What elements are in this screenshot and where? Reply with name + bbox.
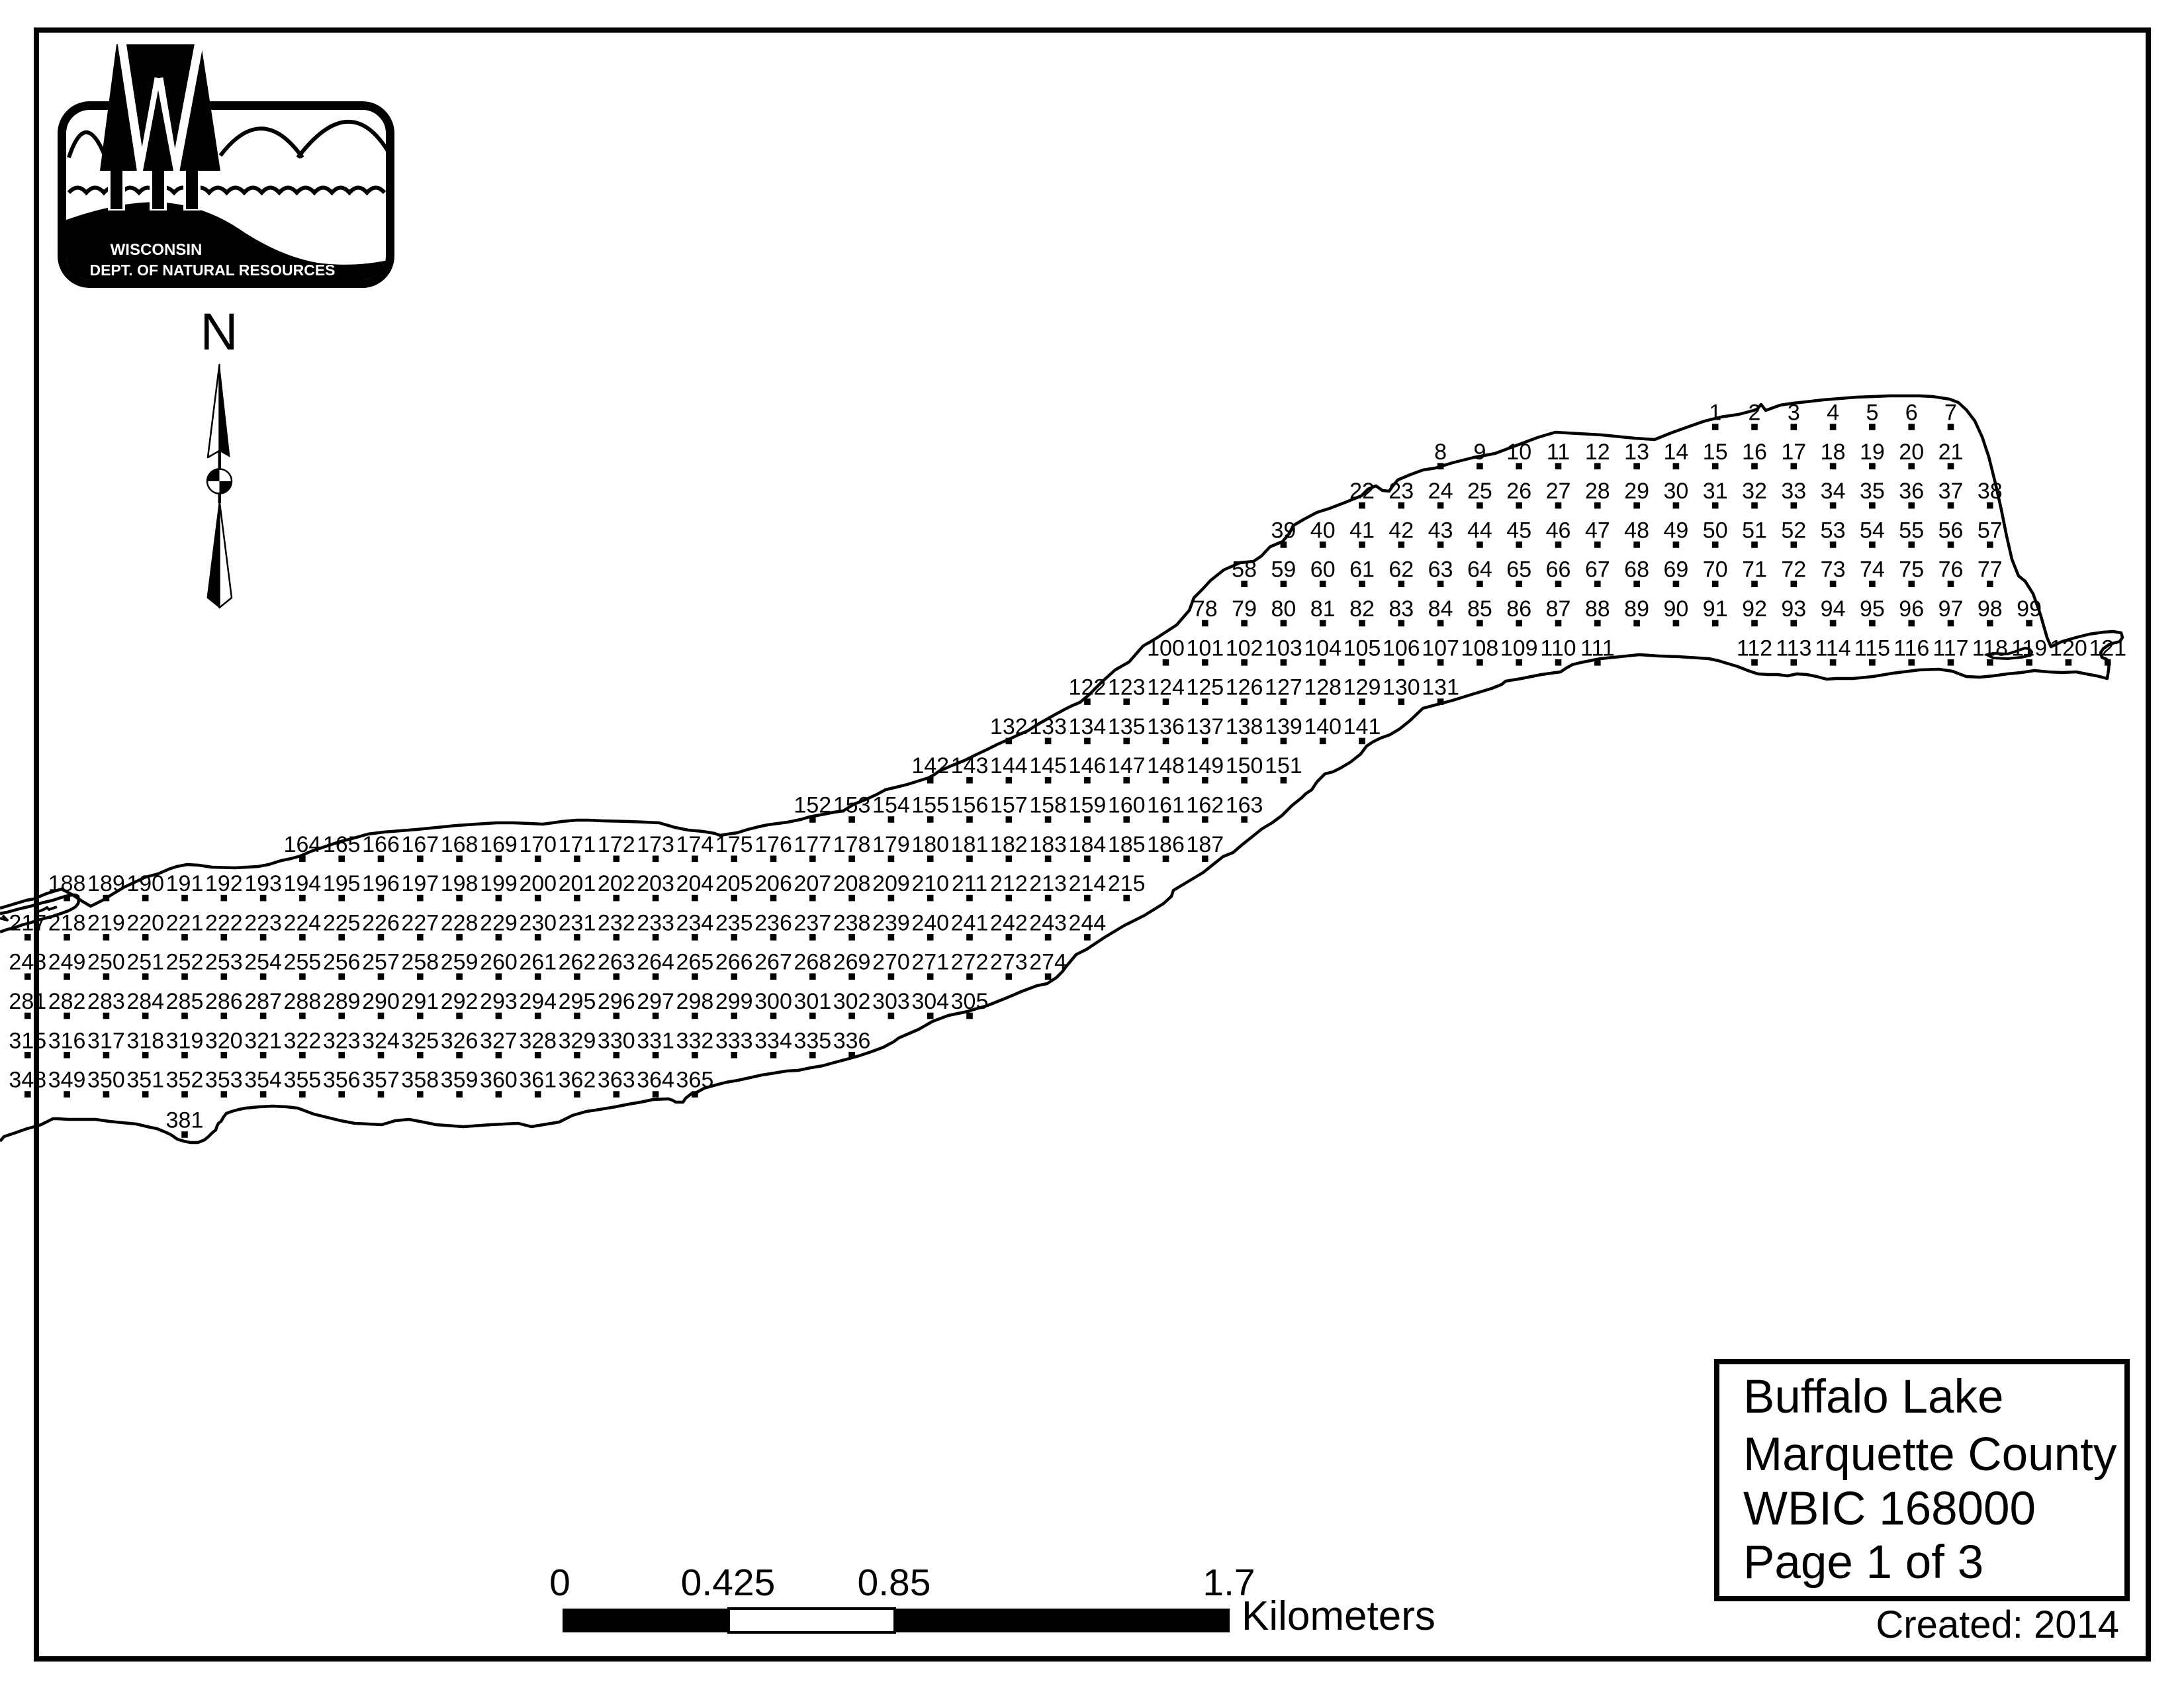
- svg-text:76: 76: [1938, 557, 1964, 583]
- svg-text:93: 93: [1781, 596, 1806, 622]
- svg-text:19: 19: [1860, 440, 1885, 465]
- svg-text:17: 17: [1781, 440, 1806, 465]
- svg-text:64: 64: [1467, 557, 1492, 583]
- svg-text:381: 381: [166, 1108, 204, 1133]
- svg-text:12: 12: [1585, 440, 1610, 465]
- svg-text:156: 156: [951, 793, 989, 818]
- svg-text:22: 22: [1349, 479, 1375, 504]
- svg-text:85: 85: [1467, 596, 1492, 622]
- svg-text:194: 194: [284, 871, 322, 896]
- svg-text:184: 184: [1069, 832, 1107, 857]
- svg-text:117: 117: [1933, 635, 1968, 661]
- svg-text:248: 248: [9, 950, 46, 975]
- svg-text:353: 353: [205, 1068, 243, 1093]
- svg-text:185: 185: [1108, 832, 1146, 857]
- svg-text:145: 145: [1029, 753, 1067, 778]
- svg-text:174: 174: [676, 832, 714, 857]
- svg-text:252: 252: [166, 950, 204, 975]
- svg-text:256: 256: [323, 950, 361, 975]
- svg-text:34: 34: [1821, 479, 1846, 504]
- svg-text:326: 326: [441, 1028, 478, 1053]
- svg-text:31: 31: [1703, 479, 1728, 504]
- svg-text:105: 105: [1343, 635, 1381, 661]
- svg-text:221: 221: [166, 910, 204, 935]
- svg-text:241: 241: [951, 910, 989, 935]
- svg-text:255: 255: [284, 950, 322, 975]
- svg-text:127: 127: [1265, 675, 1302, 700]
- svg-text:294: 294: [519, 989, 557, 1014]
- svg-text:262: 262: [559, 950, 596, 975]
- svg-text:208: 208: [833, 871, 871, 896]
- svg-text:253: 253: [205, 950, 243, 975]
- svg-text:188: 188: [48, 871, 86, 896]
- svg-text:350: 350: [87, 1068, 125, 1093]
- svg-text:295: 295: [559, 989, 596, 1014]
- svg-text:126: 126: [1226, 675, 1263, 700]
- svg-text:361: 361: [519, 1068, 557, 1093]
- svg-text:218: 218: [48, 910, 86, 935]
- svg-text:8: 8: [1434, 440, 1447, 465]
- svg-text:0.425: 0.425: [681, 1562, 776, 1604]
- svg-text:207: 207: [794, 871, 831, 896]
- svg-text:354: 354: [244, 1068, 282, 1093]
- svg-text:45: 45: [1506, 518, 1531, 543]
- svg-text:239: 239: [872, 910, 910, 935]
- svg-text:84: 84: [1428, 596, 1453, 622]
- svg-text:304: 304: [911, 989, 949, 1014]
- svg-text:187: 187: [1186, 832, 1224, 857]
- svg-text:27: 27: [1546, 479, 1571, 504]
- svg-text:143: 143: [951, 753, 989, 778]
- svg-text:250: 250: [87, 950, 125, 975]
- svg-text:363: 363: [598, 1068, 635, 1093]
- svg-text:333: 333: [715, 1028, 753, 1053]
- svg-text:26: 26: [1506, 479, 1531, 504]
- svg-text:129: 129: [1343, 675, 1381, 700]
- svg-text:324: 324: [362, 1028, 400, 1053]
- svg-text:78: 78: [1193, 596, 1218, 622]
- svg-text:32: 32: [1742, 479, 1767, 504]
- svg-text:14: 14: [1663, 440, 1688, 465]
- svg-text:237: 237: [794, 910, 831, 935]
- svg-text:282: 282: [48, 989, 86, 1014]
- svg-text:249: 249: [48, 950, 86, 975]
- svg-text:214: 214: [1069, 871, 1107, 896]
- svg-text:299: 299: [715, 989, 753, 1014]
- svg-text:147: 147: [1108, 753, 1146, 778]
- svg-text:293: 293: [480, 989, 518, 1014]
- svg-text:81: 81: [1310, 596, 1336, 622]
- svg-text:172: 172: [598, 832, 635, 857]
- svg-text:201: 201: [559, 871, 596, 896]
- svg-text:114: 114: [1815, 635, 1850, 661]
- svg-text:150: 150: [1226, 753, 1263, 778]
- svg-text:18: 18: [1821, 440, 1846, 465]
- svg-text:296: 296: [598, 989, 635, 1014]
- svg-text:66: 66: [1546, 557, 1571, 583]
- svg-text:60: 60: [1310, 557, 1336, 583]
- svg-text:232: 232: [598, 910, 635, 935]
- svg-text:148: 148: [1147, 753, 1185, 778]
- svg-text:133: 133: [1029, 714, 1067, 739]
- svg-text:Buffalo Lake: Buffalo Lake: [1743, 1371, 2003, 1423]
- svg-text:103: 103: [1265, 635, 1302, 661]
- svg-text:163: 163: [1226, 793, 1263, 818]
- svg-text:99: 99: [2017, 596, 2042, 622]
- svg-text:135: 135: [1108, 714, 1146, 739]
- svg-text:317: 317: [87, 1028, 125, 1053]
- svg-text:73: 73: [1821, 557, 1846, 583]
- svg-text:257: 257: [362, 950, 400, 975]
- svg-text:67: 67: [1585, 557, 1610, 583]
- svg-text:267: 267: [754, 950, 792, 975]
- svg-text:35: 35: [1860, 479, 1885, 504]
- svg-text:240: 240: [911, 910, 949, 935]
- svg-text:65: 65: [1506, 557, 1531, 583]
- svg-text:25: 25: [1467, 479, 1492, 504]
- svg-text:322: 322: [284, 1028, 322, 1053]
- svg-text:305: 305: [951, 989, 989, 1014]
- svg-text:43: 43: [1428, 518, 1453, 543]
- svg-text:193: 193: [244, 871, 282, 896]
- svg-text:348: 348: [9, 1068, 46, 1093]
- svg-text:178: 178: [833, 832, 871, 857]
- svg-text:301: 301: [794, 989, 831, 1014]
- svg-text:303: 303: [872, 989, 910, 1014]
- svg-text:274: 274: [1029, 950, 1067, 975]
- svg-text:226: 226: [362, 910, 400, 935]
- svg-text:112: 112: [1737, 635, 1772, 661]
- svg-text:91: 91: [1703, 596, 1728, 622]
- svg-text:98: 98: [1978, 596, 2003, 622]
- svg-text:302: 302: [833, 989, 871, 1014]
- svg-text:77: 77: [1978, 557, 2003, 583]
- svg-text:175: 175: [715, 832, 753, 857]
- svg-text:101: 101: [1186, 635, 1224, 661]
- svg-text:125: 125: [1186, 675, 1224, 700]
- svg-text:57: 57: [1978, 518, 2003, 543]
- svg-text:210: 210: [911, 871, 949, 896]
- svg-text:264: 264: [637, 950, 674, 975]
- svg-text:56: 56: [1938, 518, 1964, 543]
- svg-text:292: 292: [441, 989, 478, 1014]
- svg-text:291: 291: [401, 989, 439, 1014]
- svg-text:Kilometers: Kilometers: [1242, 1593, 1435, 1639]
- svg-text:243: 243: [1029, 910, 1067, 935]
- svg-text:165: 165: [323, 832, 361, 857]
- svg-text:272: 272: [951, 950, 989, 975]
- svg-text:332: 332: [676, 1028, 714, 1053]
- svg-text:119: 119: [2011, 635, 2047, 661]
- svg-text:58: 58: [1232, 557, 1257, 583]
- svg-text:52: 52: [1781, 518, 1806, 543]
- svg-text:199: 199: [480, 871, 518, 896]
- svg-text:284: 284: [126, 989, 164, 1014]
- svg-text:40: 40: [1310, 518, 1336, 543]
- svg-text:111: 111: [1580, 635, 1615, 661]
- svg-text:48: 48: [1624, 518, 1649, 543]
- svg-text:11: 11: [1547, 440, 1570, 465]
- svg-text:179: 179: [872, 832, 910, 857]
- svg-text:116: 116: [1893, 635, 1929, 661]
- svg-text:258: 258: [401, 950, 439, 975]
- svg-text:171: 171: [559, 832, 596, 857]
- svg-text:55: 55: [1899, 518, 1924, 543]
- svg-text:297: 297: [637, 989, 674, 1014]
- svg-text:75: 75: [1899, 557, 1924, 583]
- svg-text:61: 61: [1349, 557, 1375, 583]
- svg-text:200: 200: [519, 871, 557, 896]
- svg-text:134: 134: [1069, 714, 1107, 739]
- svg-text:261: 261: [519, 950, 557, 975]
- svg-text:146: 146: [1069, 753, 1107, 778]
- svg-text:30: 30: [1663, 479, 1688, 504]
- svg-text:158: 158: [1029, 793, 1067, 818]
- svg-text:202: 202: [598, 871, 635, 896]
- svg-text:39: 39: [1271, 518, 1296, 543]
- svg-text:29: 29: [1624, 479, 1649, 504]
- svg-text:271: 271: [911, 950, 949, 975]
- svg-text:142: 142: [911, 753, 949, 778]
- svg-text:49: 49: [1663, 518, 1688, 543]
- svg-text:227: 227: [401, 910, 439, 935]
- svg-text:10: 10: [1506, 440, 1531, 465]
- svg-text:16: 16: [1742, 440, 1767, 465]
- svg-text:319: 319: [166, 1028, 204, 1053]
- svg-text:191: 191: [166, 871, 204, 896]
- svg-text:315: 315: [9, 1028, 46, 1053]
- svg-text:4: 4: [1827, 400, 1839, 426]
- svg-text:51: 51: [1742, 518, 1767, 543]
- svg-text:68: 68: [1624, 557, 1649, 583]
- svg-text:62: 62: [1388, 557, 1414, 583]
- svg-text:138: 138: [1226, 714, 1263, 739]
- svg-text:21: 21: [1938, 440, 1964, 465]
- svg-text:59: 59: [1271, 557, 1296, 583]
- svg-text:42: 42: [1388, 518, 1414, 543]
- svg-text:300: 300: [754, 989, 792, 1014]
- svg-text:79: 79: [1232, 596, 1257, 622]
- svg-text:335: 335: [794, 1028, 831, 1053]
- svg-text:327: 327: [480, 1028, 518, 1053]
- svg-text:209: 209: [872, 871, 910, 896]
- svg-text:359: 359: [441, 1068, 478, 1093]
- svg-text:328: 328: [519, 1028, 557, 1053]
- svg-text:Marquette County: Marquette County: [1743, 1429, 2117, 1481]
- svg-text:1: 1: [1709, 400, 1721, 426]
- svg-text:254: 254: [244, 950, 282, 975]
- svg-text:149: 149: [1186, 753, 1224, 778]
- svg-text:9: 9: [1473, 440, 1486, 465]
- svg-text:268: 268: [794, 950, 831, 975]
- svg-text:69: 69: [1663, 557, 1688, 583]
- svg-text:63: 63: [1428, 557, 1453, 583]
- svg-text:298: 298: [676, 989, 714, 1014]
- svg-text:213: 213: [1029, 871, 1067, 896]
- svg-text:233: 233: [637, 910, 674, 935]
- svg-text:273: 273: [990, 950, 1028, 975]
- svg-text:47: 47: [1585, 518, 1610, 543]
- svg-text:195: 195: [323, 871, 361, 896]
- svg-text:229: 229: [480, 910, 518, 935]
- svg-text:197: 197: [401, 871, 439, 896]
- svg-text:329: 329: [559, 1028, 596, 1053]
- svg-text:323: 323: [323, 1028, 361, 1053]
- svg-text:180: 180: [911, 832, 949, 857]
- svg-text:242: 242: [990, 910, 1028, 935]
- svg-text:220: 220: [126, 910, 164, 935]
- svg-text:283: 283: [87, 989, 125, 1014]
- svg-text:7: 7: [1944, 400, 1957, 426]
- svg-text:89: 89: [1624, 596, 1649, 622]
- svg-text:0.85: 0.85: [858, 1562, 931, 1604]
- svg-text:230: 230: [519, 910, 557, 935]
- svg-text:72: 72: [1781, 557, 1806, 583]
- svg-text:153: 153: [833, 793, 871, 818]
- svg-text:321: 321: [244, 1028, 282, 1053]
- svg-text:260: 260: [480, 950, 518, 975]
- svg-text:24: 24: [1428, 479, 1453, 504]
- svg-text:225: 225: [323, 910, 361, 935]
- svg-text:285: 285: [166, 989, 204, 1014]
- svg-text:336: 336: [833, 1028, 871, 1053]
- svg-text:288: 288: [284, 989, 322, 1014]
- svg-text:151: 151: [1265, 753, 1302, 778]
- svg-text:110: 110: [1540, 635, 1576, 661]
- svg-text:357: 357: [362, 1068, 400, 1093]
- svg-text:15: 15: [1703, 440, 1728, 465]
- svg-text:157: 157: [990, 793, 1028, 818]
- svg-text:161: 161: [1147, 793, 1185, 818]
- svg-text:100: 100: [1147, 635, 1185, 661]
- svg-text:113: 113: [1776, 635, 1811, 661]
- svg-text:130: 130: [1383, 675, 1420, 700]
- svg-text:104: 104: [1304, 635, 1342, 661]
- svg-text:289: 289: [323, 989, 361, 1014]
- svg-text:N: N: [200, 302, 238, 361]
- svg-text:365: 365: [676, 1068, 714, 1093]
- svg-text:316: 316: [48, 1028, 86, 1053]
- svg-text:203: 203: [637, 871, 674, 896]
- svg-text:94: 94: [1821, 596, 1846, 622]
- svg-text:234: 234: [676, 910, 714, 935]
- svg-text:159: 159: [1069, 793, 1107, 818]
- svg-text:118: 118: [1972, 635, 2008, 661]
- svg-text:224: 224: [284, 910, 322, 935]
- svg-text:162: 162: [1186, 793, 1224, 818]
- svg-text:206: 206: [754, 871, 792, 896]
- svg-text:356: 356: [323, 1068, 361, 1093]
- svg-text:176: 176: [754, 832, 792, 857]
- svg-text:46: 46: [1546, 518, 1571, 543]
- svg-text:358: 358: [401, 1068, 439, 1093]
- svg-text:137: 137: [1186, 714, 1224, 739]
- svg-text:2: 2: [1749, 400, 1761, 426]
- svg-text:318: 318: [126, 1028, 164, 1053]
- svg-text:290: 290: [362, 989, 400, 1014]
- svg-text:83: 83: [1388, 596, 1414, 622]
- svg-text:97: 97: [1938, 596, 1964, 622]
- svg-text:37: 37: [1938, 479, 1964, 504]
- svg-text:362: 362: [559, 1068, 596, 1093]
- svg-text:169: 169: [480, 832, 518, 857]
- svg-text:364: 364: [637, 1068, 674, 1093]
- svg-text:13: 13: [1624, 440, 1649, 465]
- svg-text:192: 192: [205, 871, 243, 896]
- svg-text:219: 219: [87, 910, 125, 935]
- svg-text:88: 88: [1585, 596, 1610, 622]
- svg-text:186: 186: [1147, 832, 1185, 857]
- svg-text:320: 320: [205, 1028, 243, 1053]
- svg-text:124: 124: [1147, 675, 1185, 700]
- svg-text:20: 20: [1899, 440, 1924, 465]
- svg-text:168: 168: [441, 832, 478, 857]
- svg-text:38: 38: [1978, 479, 2003, 504]
- svg-text:141: 141: [1343, 714, 1381, 739]
- svg-text:212: 212: [990, 871, 1028, 896]
- svg-text:86: 86: [1506, 596, 1531, 622]
- svg-text:6: 6: [1905, 400, 1918, 426]
- svg-text:122: 122: [1069, 675, 1107, 700]
- svg-text:131: 131: [1422, 675, 1459, 700]
- svg-text:152: 152: [794, 793, 831, 818]
- svg-text:23: 23: [1388, 479, 1414, 504]
- svg-text:115: 115: [1854, 635, 1890, 661]
- svg-text:96: 96: [1899, 596, 1924, 622]
- svg-text:132: 132: [990, 714, 1028, 739]
- svg-text:82: 82: [1349, 596, 1375, 622]
- svg-text:217: 217: [9, 910, 46, 935]
- svg-text:181: 181: [951, 832, 989, 857]
- svg-text:33: 33: [1781, 479, 1806, 504]
- svg-text:154: 154: [872, 793, 910, 818]
- svg-text:355: 355: [284, 1068, 322, 1093]
- svg-text:Page 1 of 3: Page 1 of 3: [1743, 1536, 1983, 1589]
- svg-text:0: 0: [549, 1562, 570, 1604]
- svg-text:28: 28: [1585, 479, 1610, 504]
- svg-text:108: 108: [1461, 635, 1499, 661]
- svg-text:351: 351: [126, 1068, 164, 1093]
- svg-text:231: 231: [559, 910, 596, 935]
- svg-text:106: 106: [1383, 635, 1420, 661]
- svg-text:215: 215: [1108, 871, 1146, 896]
- svg-text:50: 50: [1703, 518, 1728, 543]
- svg-text:164: 164: [284, 832, 322, 857]
- svg-text:198: 198: [441, 871, 478, 896]
- svg-text:228: 228: [441, 910, 478, 935]
- svg-text:WISCONSIN: WISCONSIN: [111, 241, 203, 259]
- svg-text:330: 330: [598, 1028, 635, 1053]
- svg-text:41: 41: [1349, 518, 1375, 543]
- svg-text:120: 120: [2050, 635, 2087, 661]
- svg-text:183: 183: [1029, 832, 1067, 857]
- svg-text:5: 5: [1866, 400, 1878, 426]
- svg-text:36: 36: [1899, 479, 1924, 504]
- svg-text:287: 287: [244, 989, 282, 1014]
- svg-text:3: 3: [1788, 400, 1800, 426]
- svg-text:123: 123: [1108, 675, 1146, 700]
- svg-text:136: 136: [1147, 714, 1185, 739]
- svg-text:238: 238: [833, 910, 871, 935]
- svg-text:265: 265: [676, 950, 714, 975]
- svg-text:Created: 2014: Created: 2014: [1876, 1603, 2119, 1646]
- svg-text:244: 244: [1069, 910, 1107, 935]
- svg-text:167: 167: [401, 832, 439, 857]
- svg-text:349: 349: [48, 1068, 86, 1093]
- svg-text:87: 87: [1546, 596, 1571, 622]
- svg-text:334: 334: [754, 1028, 792, 1053]
- svg-text:71: 71: [1742, 557, 1767, 583]
